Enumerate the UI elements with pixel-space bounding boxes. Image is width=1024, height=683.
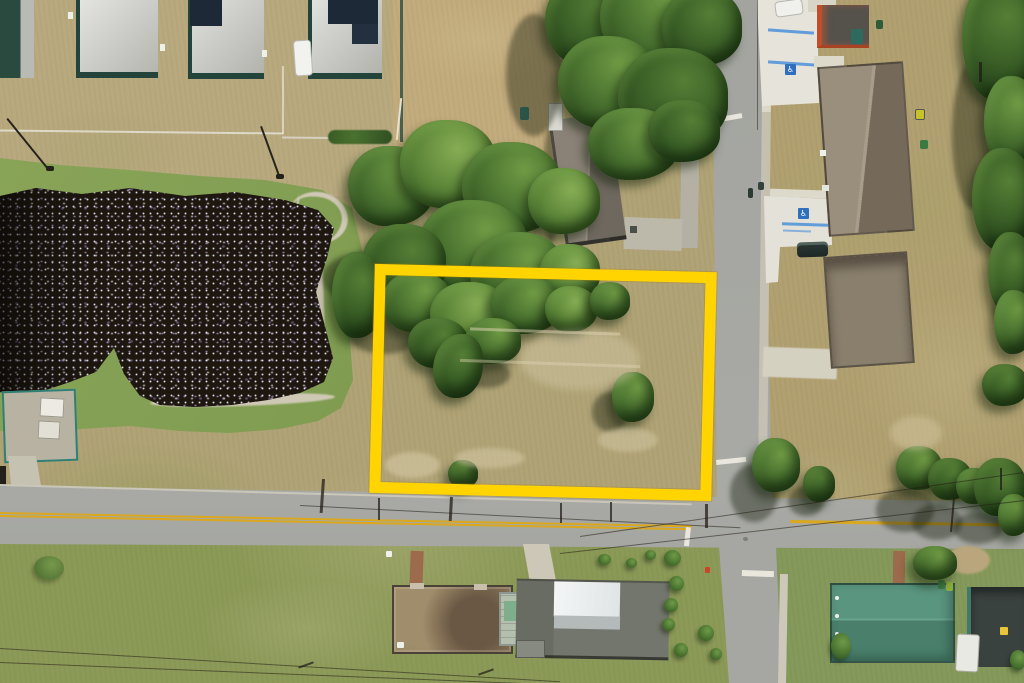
roof-vent-2 <box>474 584 487 590</box>
handicap-symbol-south: ♿ <box>798 208 809 219</box>
palm-cluster <box>752 438 800 492</box>
house-nw-2 <box>76 0 158 78</box>
parked-car-dark <box>797 241 829 257</box>
tree <box>803 466 835 502</box>
bin-green-2 <box>920 140 928 149</box>
bush <box>831 633 851 659</box>
brick-path-teal-house <box>893 551 906 584</box>
rv-white <box>955 633 980 672</box>
bin-teal-house-2 <box>946 582 953 591</box>
ac-unit-3 <box>262 50 267 57</box>
bush <box>710 648 722 660</box>
house-east-1-meter <box>820 150 826 156</box>
pole-shadow <box>705 504 708 528</box>
hedge-row <box>328 130 392 144</box>
solar-panel-1 <box>190 0 222 26</box>
house-east-1-pad <box>822 185 829 191</box>
sand-path-east <box>890 416 942 450</box>
ac-unit-2 <box>160 44 165 51</box>
bush <box>662 618 675 631</box>
bush <box>645 550 656 560</box>
shed-gray <box>516 640 545 658</box>
power-line-vertical <box>757 0 758 130</box>
bush <box>698 625 714 641</box>
bush <box>626 558 637 568</box>
door-yellow <box>1000 627 1008 635</box>
bush <box>34 556 64 580</box>
pole-shadow <box>610 502 612 522</box>
porch-post-1 <box>835 596 839 600</box>
lawn-chair-white <box>397 642 404 648</box>
bush <box>664 598 678 612</box>
porch-post-2 <box>835 614 839 618</box>
bin-road-edge-2 <box>758 182 764 190</box>
property-boundary <box>369 264 716 501</box>
bush <box>669 576 684 591</box>
streetlight-head-2 <box>276 174 284 179</box>
bush <box>598 554 611 565</box>
house-brown-flat <box>392 585 513 654</box>
dumpster-teal <box>851 29 863 44</box>
tree <box>648 100 720 162</box>
bin-teal-house-1 <box>938 580 945 589</box>
pole-shadow <box>1000 468 1002 490</box>
solar-panel-3 <box>352 24 378 44</box>
tree <box>982 364 1024 406</box>
pole-shadow <box>560 503 562 523</box>
bin-green-1 <box>876 20 883 29</box>
house-east-2 <box>823 251 915 369</box>
streetlight-head-1 <box>46 166 54 171</box>
aerial-photo: ♿ ♿ <box>0 0 1024 683</box>
house-east-1 <box>817 61 915 237</box>
ac-unit-1 <box>68 12 73 19</box>
pole-shadow <box>378 498 380 520</box>
stop-bar-south-leg <box>742 570 774 577</box>
bin-yellow <box>915 109 925 120</box>
roof-vent-1 <box>410 583 424 589</box>
fire-hydrant <box>705 567 710 573</box>
bush <box>674 643 688 657</box>
bin-road-edge-1 <box>748 188 753 198</box>
ac-unit-center <box>630 226 637 233</box>
tree-near-teal-house <box>913 546 957 580</box>
bush <box>664 550 681 566</box>
fence-east-dark <box>400 0 403 142</box>
utility-pad <box>38 420 61 439</box>
white-car-driveway <box>293 39 313 76</box>
fence-mid-vertical <box>282 66 284 134</box>
tree <box>528 168 600 234</box>
concrete-remnant-east <box>762 347 837 380</box>
manhole <box>743 537 748 541</box>
handicap-symbol-north: ♿ <box>785 64 796 75</box>
solar-panel-2 <box>328 0 378 24</box>
house-gray-metal-roof-lower <box>554 615 620 629</box>
utility-pole <box>979 62 982 82</box>
utility-tank <box>40 397 65 417</box>
mailbox-white <box>386 551 392 557</box>
house-nw-1 <box>0 0 34 78</box>
tree-shadow <box>953 512 1003 544</box>
house-gray-metal-roof-white <box>554 581 621 617</box>
tree <box>994 290 1024 354</box>
bush <box>1010 650 1024 670</box>
concrete-pad-center <box>623 217 682 251</box>
